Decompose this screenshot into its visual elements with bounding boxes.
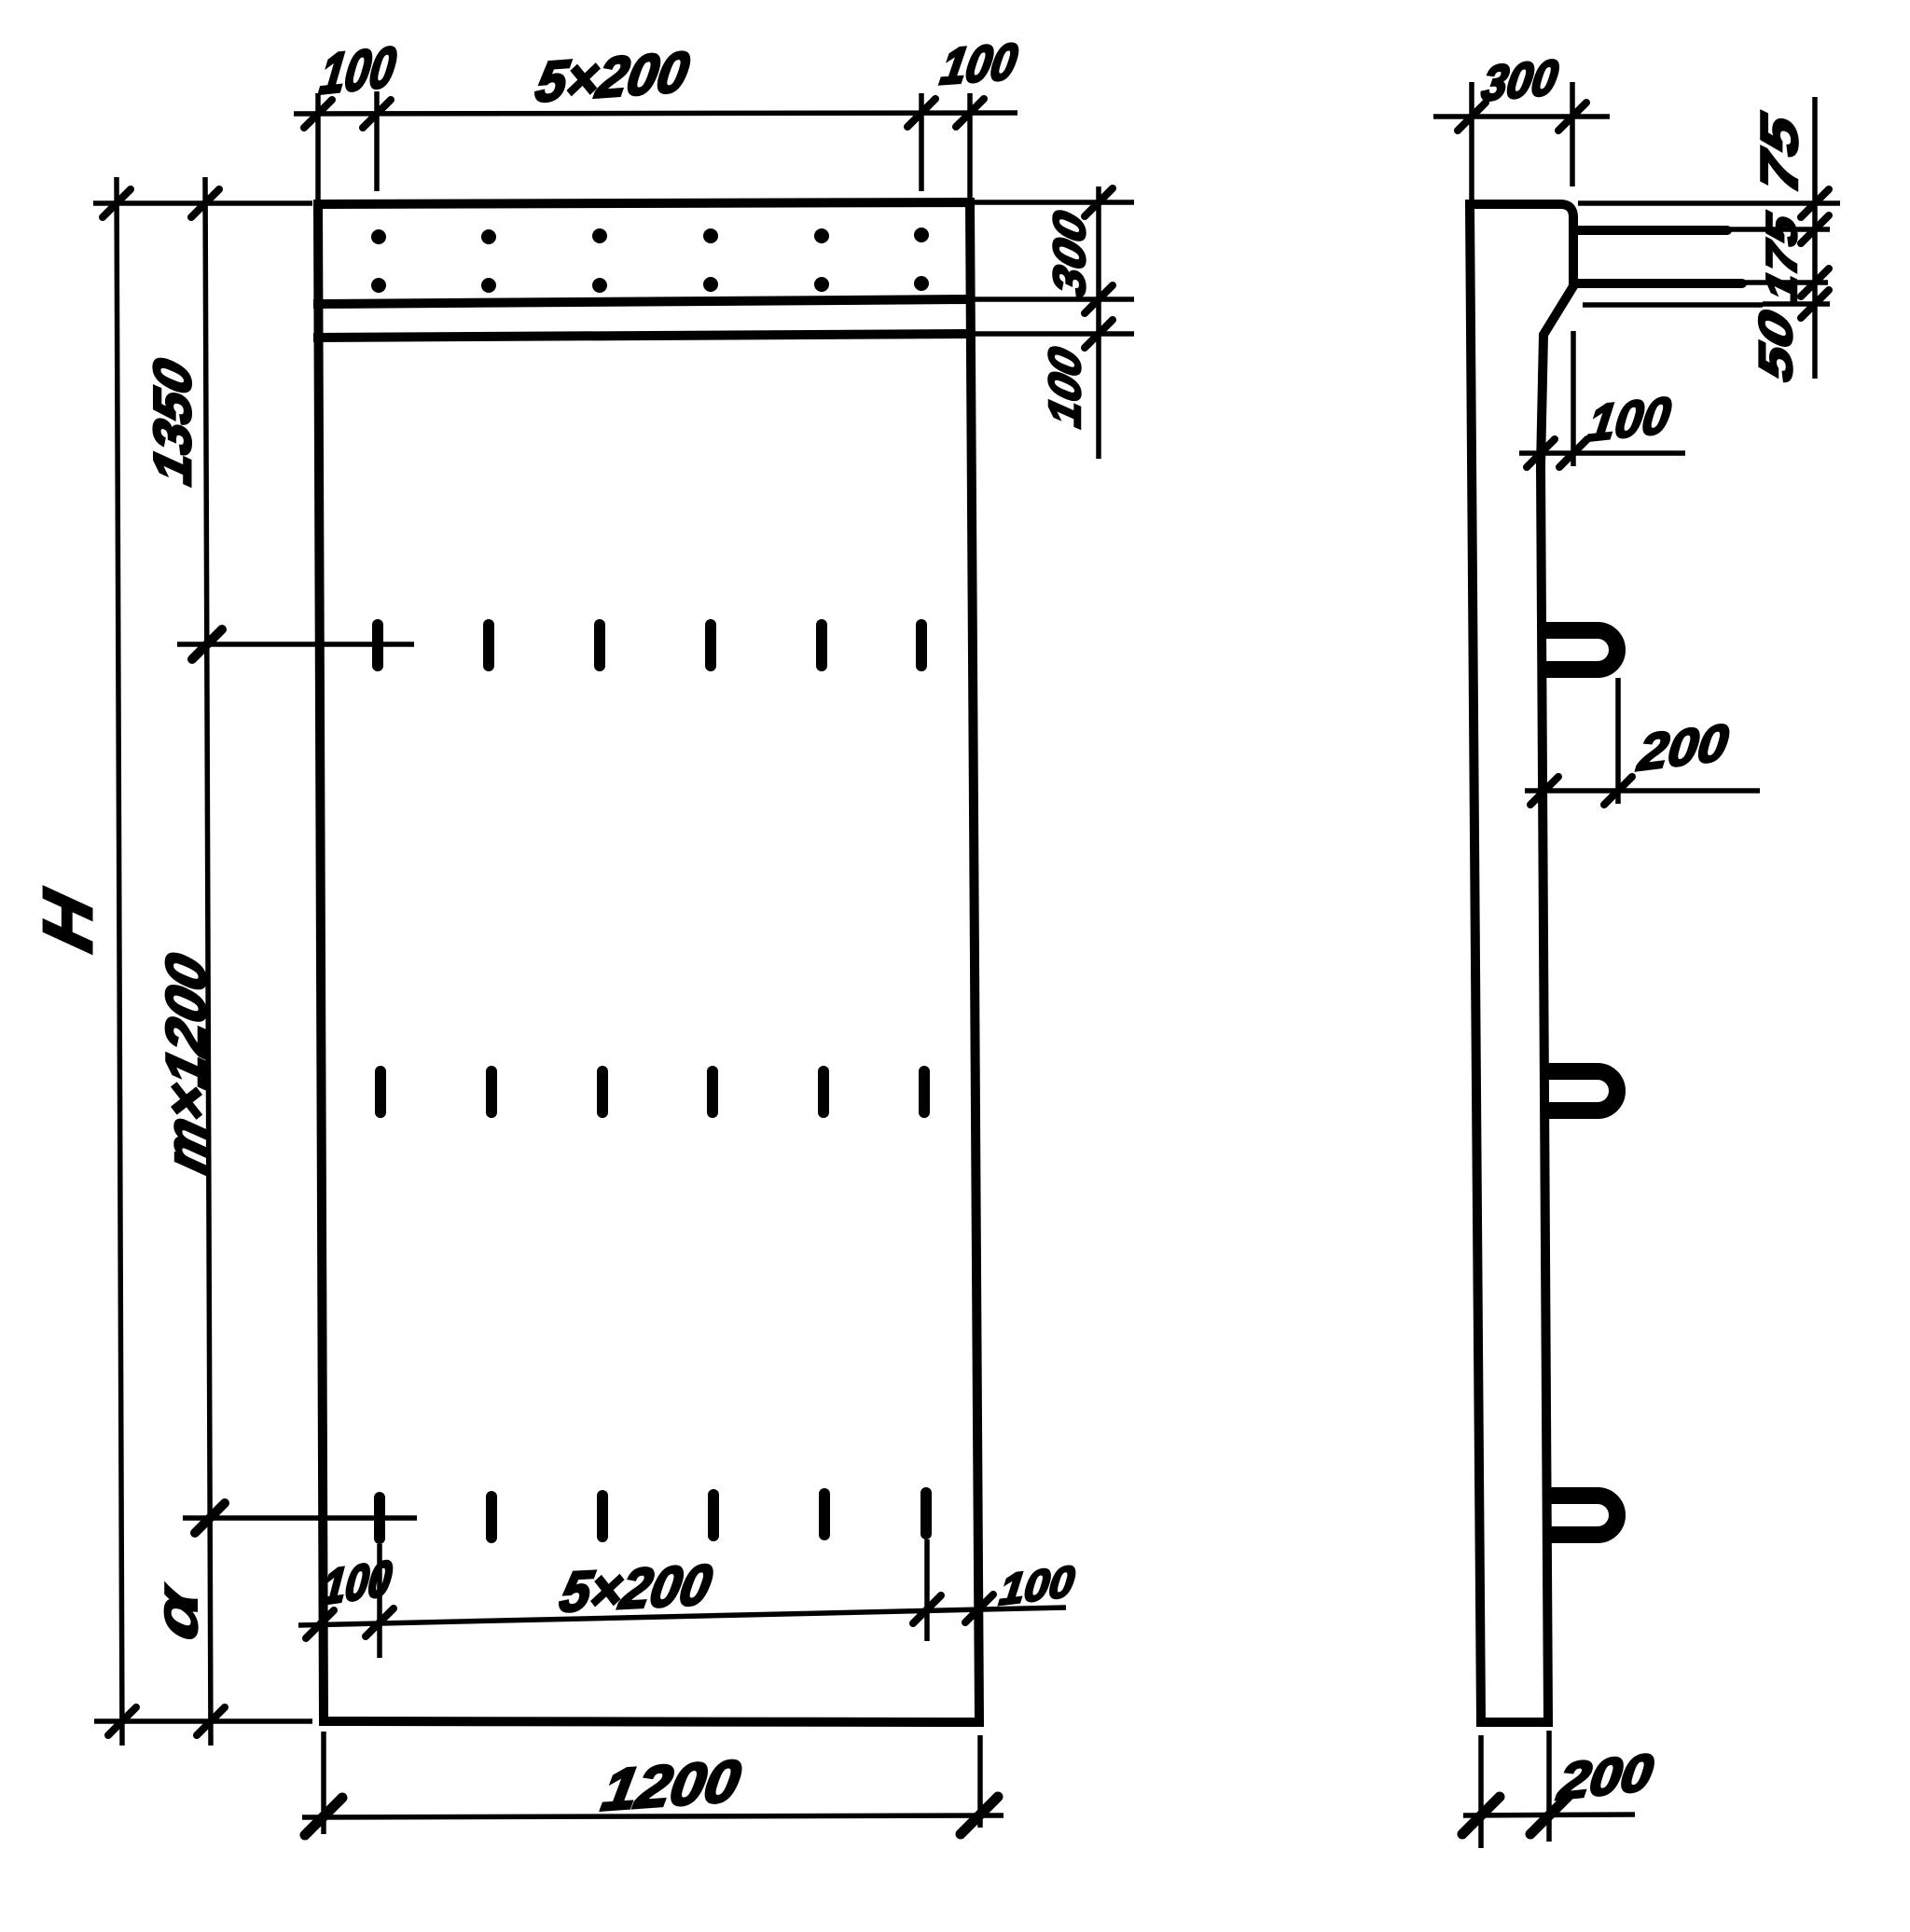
svg-text:100: 100	[1041, 343, 1090, 432]
svg-text:m×1200: m×1200	[155, 948, 217, 1179]
svg-text:100: 100	[937, 33, 1022, 96]
svg-text:100: 100	[1585, 386, 1674, 453]
svg-text:100: 100	[316, 34, 399, 106]
svg-text:300: 300	[1045, 207, 1095, 301]
svg-text:200: 200	[1634, 712, 1731, 781]
svg-text:300: 300	[1478, 50, 1561, 112]
svg-text:1200: 1200	[598, 1748, 745, 1823]
svg-text:50: 50	[1750, 306, 1802, 386]
svg-text:5×200: 5×200	[532, 40, 694, 114]
svg-text:100: 100	[997, 1556, 1077, 1614]
svg-text:5×200: 5×200	[555, 1552, 716, 1623]
svg-text:175: 175	[1758, 208, 1806, 307]
svg-text:200: 200	[1555, 1743, 1656, 1811]
svg-text:1350: 1350	[145, 353, 202, 490]
svg-text:100: 100	[320, 1551, 394, 1616]
